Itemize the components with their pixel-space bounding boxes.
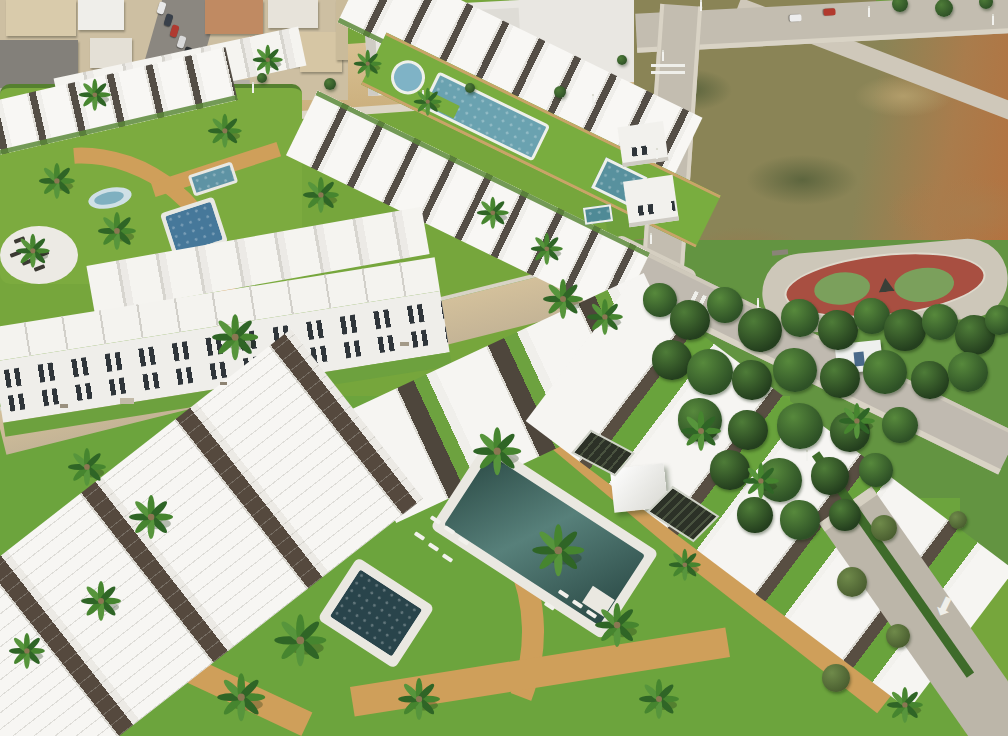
park-tree — [829, 499, 861, 531]
park-tree — [985, 305, 1008, 335]
park-tree — [922, 304, 958, 340]
aerial-render-residential-development: ⬆ — [0, 0, 1008, 736]
town-building — [6, 0, 76, 36]
street-lamp — [868, 8, 870, 17]
street-lamp — [662, 52, 664, 61]
park-tree — [758, 458, 802, 502]
street-lamp — [422, 92, 424, 101]
small-tree — [554, 86, 566, 98]
street-lamp — [592, 96, 594, 105]
park-tree — [820, 358, 860, 398]
construction-debris — [400, 342, 409, 346]
villa-windows — [629, 201, 676, 217]
villa-b — [623, 175, 679, 228]
construction-debris — [60, 404, 68, 408]
park-tree — [811, 457, 849, 495]
crosswalk-north — [651, 60, 685, 74]
park-tree — [737, 497, 773, 533]
park-tree — [948, 352, 988, 392]
small-tree — [257, 73, 267, 83]
small-tree — [465, 83, 475, 93]
car — [789, 14, 801, 22]
park-tree — [707, 287, 743, 323]
community-pool-teal — [188, 161, 239, 196]
small-tree — [617, 55, 627, 65]
playground-green-b — [893, 265, 956, 305]
park-tree — [670, 300, 710, 340]
street-lamp — [992, 16, 994, 25]
street-tree — [837, 567, 867, 597]
street-tree — [871, 515, 897, 541]
park-tree — [678, 398, 722, 442]
park-tree — [732, 360, 772, 400]
park-tree — [652, 340, 692, 380]
park-tree — [773, 348, 817, 392]
street-lamp — [252, 84, 254, 93]
street-tree — [822, 664, 850, 692]
town-building — [205, 0, 263, 34]
park-tree — [781, 299, 819, 337]
street-tree — [949, 511, 967, 529]
villa-a — [617, 121, 668, 167]
street-lamp — [700, 2, 702, 11]
construction-debris — [120, 398, 134, 404]
small-tree — [324, 78, 336, 90]
park-tree — [728, 410, 768, 450]
street-lamp — [806, 452, 808, 461]
park-tree — [687, 349, 733, 395]
park-tree — [738, 308, 782, 352]
park-tree — [911, 361, 949, 399]
street-lamp — [650, 235, 652, 244]
play-equipment — [877, 277, 894, 293]
construction-debris — [220, 382, 227, 385]
town-building — [268, 0, 318, 28]
park-tree — [710, 450, 750, 490]
park-tree — [777, 403, 823, 449]
villa-windows — [622, 143, 665, 158]
park-tree — [884, 309, 926, 351]
park-tree — [859, 453, 893, 487]
town-building — [78, 0, 124, 30]
park-tree — [882, 407, 918, 443]
park-tree — [780, 500, 820, 540]
car — [823, 8, 835, 16]
park-tree — [863, 350, 907, 394]
park-tree — [830, 412, 870, 452]
street-tree — [886, 624, 910, 648]
park-tree — [818, 310, 858, 350]
splash-water — [93, 189, 125, 207]
street-lamp — [656, 150, 658, 159]
